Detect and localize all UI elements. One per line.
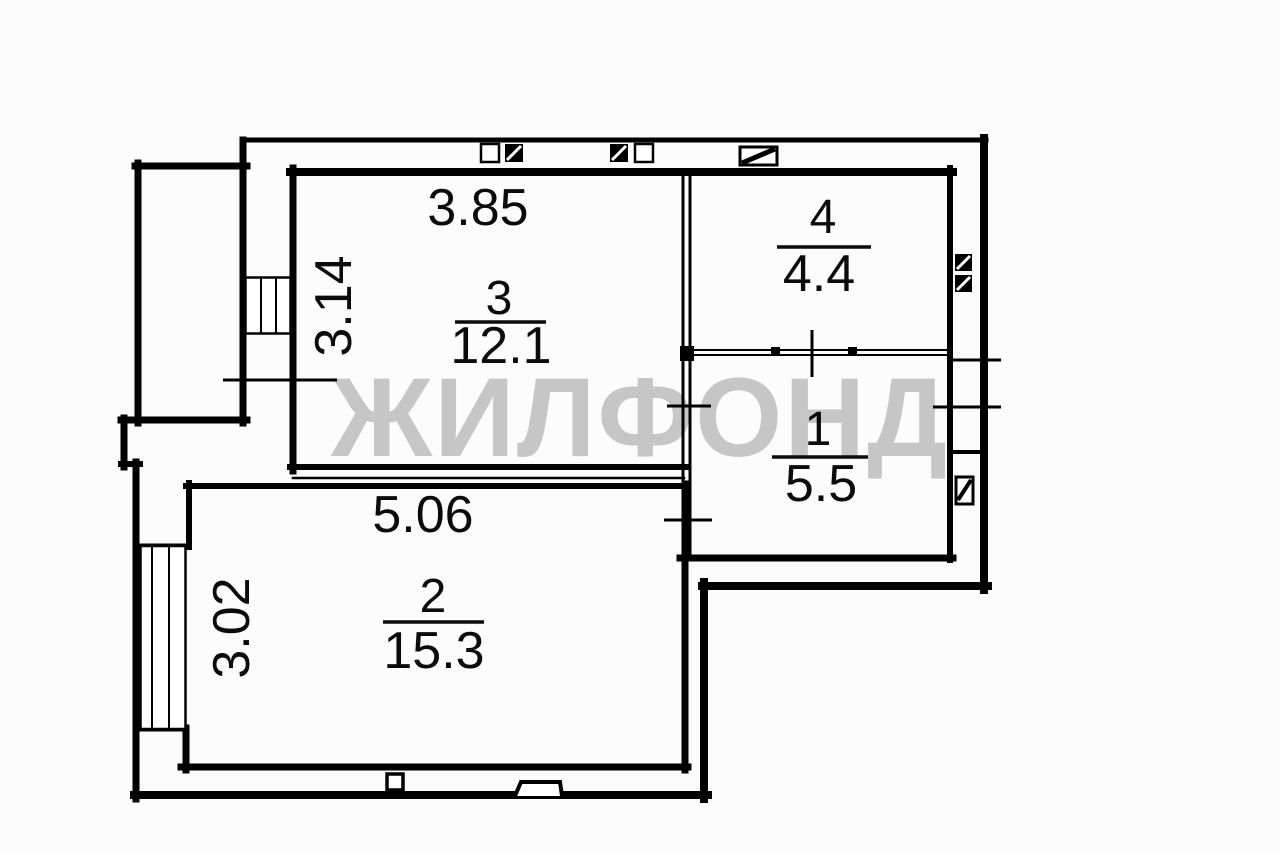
window-left-icon: [141, 546, 186, 729]
window-frame: [246, 278, 291, 334]
vent-shaft-icon: [635, 144, 653, 162]
room3-depth-label: 3.14: [305, 255, 363, 356]
door-jamb: [848, 347, 857, 356]
room2-area: 15.3: [383, 622, 484, 680]
floor-plan-page: ЖИЛФОНД: [0, 0, 1280, 853]
floor-plan-svg: ЖИЛФОНД: [0, 0, 1280, 853]
room3-area: 12.1: [450, 317, 551, 375]
room2-depth-label: 3.02: [203, 577, 261, 678]
porch-step-icon: [515, 782, 562, 796]
door-jamb: [771, 347, 780, 356]
room1-number: 1: [805, 403, 832, 456]
vent-shaft-icon: [387, 774, 403, 790]
room2-number: 2: [420, 570, 447, 623]
room3-width-label: 3.85: [427, 179, 528, 237]
entry-door-icon: [956, 477, 973, 504]
window-frame: [141, 546, 186, 729]
room2-width-label: 5.06: [372, 486, 473, 544]
vent-shaft-icon: [740, 147, 777, 165]
vent-shaft-icon: [505, 144, 523, 162]
vent-shaft-icon: [955, 275, 972, 292]
room4-area: 4.4: [783, 245, 855, 303]
vent-shaft-icon: [610, 144, 628, 162]
window-balcony-icon: [246, 278, 291, 334]
room1-area: 5.5: [785, 455, 857, 513]
vent-shaft-icon: [955, 254, 972, 271]
vent-shaft-icon: [481, 144, 499, 162]
wall-node: [680, 346, 694, 361]
room4-number: 4: [810, 191, 837, 244]
